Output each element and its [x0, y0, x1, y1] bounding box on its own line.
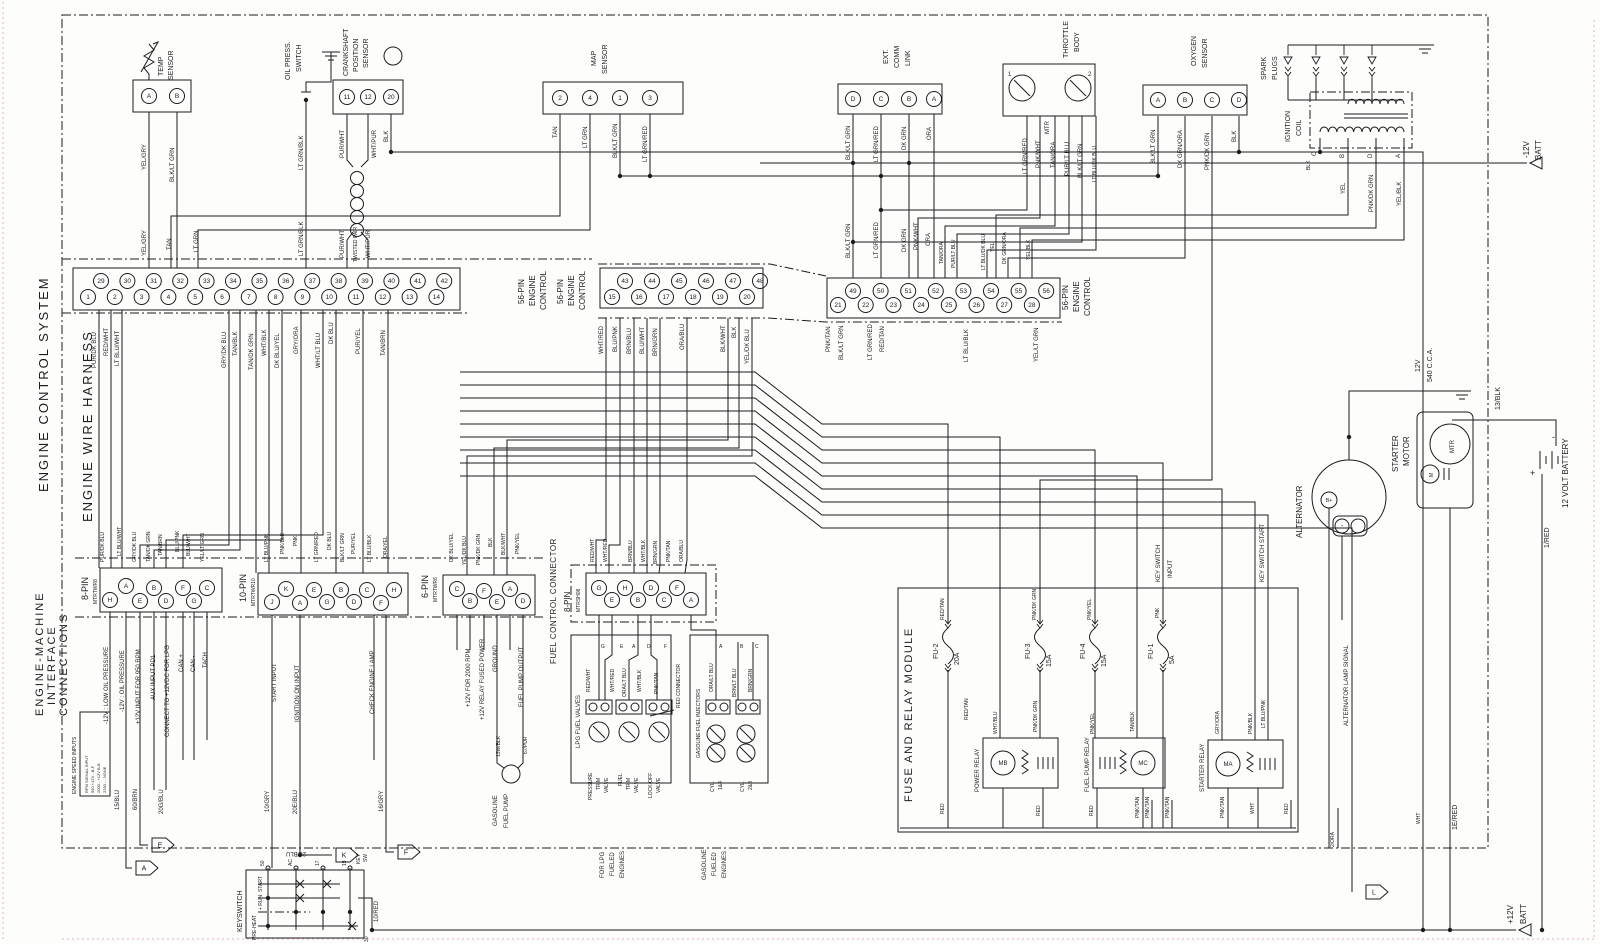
- keyswitch-vt: START: [258, 876, 264, 892]
- temp_sensor-vt: TAN: [167, 238, 173, 250]
- conn_8pin-vt: MTRTWR8: [93, 579, 99, 604]
- svg-text:FUEL PUMP OUTPUT: FUEL PUMP OUTPUT: [519, 646, 525, 707]
- title-engine-machine: ENGINE-MACHINE: [34, 591, 46, 716]
- throttle_body-vt: BLK/LT GRN: [1078, 144, 1084, 178]
- svg-text:10/RED: 10/RED: [374, 900, 380, 922]
- battery-symbol: [1540, 451, 1558, 469]
- svg-text:MTRTWR8: MTRTWR8: [93, 579, 99, 604]
- fuse_relay-vt: PNK/YEL: [1087, 599, 1093, 620]
- spark_ignition-vt: SPARK: [1261, 56, 1268, 80]
- gas_injectors-circ: [738, 703, 746, 711]
- svg-text:9: 9: [301, 294, 305, 301]
- oxygen_sensor-wire: [1040, 116, 1212, 624]
- svg-text:12V: 12V: [1415, 359, 1422, 372]
- svg-text:1: 1: [618, 95, 622, 102]
- title-fuel-control-connector: FUEL CONTROL CONNECTOR: [549, 538, 558, 664]
- power_right-vt: +12V: [1506, 904, 1515, 924]
- svg-text:YEL/DK BLU: YEL/DK BLU: [462, 536, 468, 565]
- ecm_right-pins: 4950515253545556: [846, 284, 1054, 299]
- svg-text:BRN/BLU: BRN/BLU: [627, 328, 633, 354]
- oxygen_sensor-vt: OXYGEN: [1191, 36, 1198, 66]
- svg-text:19: 19: [716, 294, 724, 301]
- ext_comm_link-vt: LINK: [905, 50, 912, 66]
- oil_press_switch-vt: OIL PRESS.: [285, 41, 292, 80]
- svg-text:56: 56: [1043, 288, 1051, 295]
- svg-text:2250 - - NONE: 2250 - - NONE: [102, 766, 107, 793]
- svg-text:TAN: TAN: [167, 238, 173, 250]
- fuel_connector-pin: F: [670, 581, 685, 596]
- svg-text:LT BLU/PNK: LT BLU/PNK: [1261, 699, 1267, 728]
- svg-text:H: H: [108, 597, 113, 604]
- svg-text:PUR/DK BLU: PUR/DK BLU: [100, 532, 106, 562]
- ext_comm_link-vt: EXT.: [883, 49, 890, 64]
- svg-text:950 +12V - B-F: 950 +12V - B-F: [90, 765, 95, 793]
- ext_comm_link-pin: A: [927, 92, 942, 107]
- gas_injectors-wire: [710, 728, 722, 740]
- ecm_left-vt: ENGINE: [528, 275, 537, 306]
- svg-text:L: L: [1372, 890, 1376, 897]
- crank_sensor-vt: TWISTED PAIR: [353, 226, 359, 262]
- svg-text:PNK/DK GRN: PNK/DK GRN: [1205, 133, 1211, 170]
- ecm_mid-vt: BLK: [732, 327, 738, 338]
- svg-text:C: C: [1210, 97, 1215, 104]
- svg-text:PNK/TAN: PNK/TAN: [1145, 796, 1151, 818]
- throttle_body-wire: [957, 116, 1069, 278]
- throttle_body-vt: LT BLU/DK BLU: [1092, 146, 1098, 182]
- temp_sensor-pin: B: [170, 89, 185, 104]
- svg-text:RPM SIGNAL INPUT: RPM SIGNAL INPUT: [84, 755, 89, 793]
- svg-text:MA: MA: [1224, 762, 1233, 768]
- fuse_relay-vt: 15A: [1101, 654, 1108, 667]
- lpg_valves-wire: [593, 726, 605, 738]
- fuse_relay-vt: 20A: [954, 652, 961, 665]
- svg-text:BRN/GRN: BRN/GRN: [653, 541, 659, 564]
- power_right-ht: -: [1552, 432, 1555, 442]
- svg-text:FOR LPG: FOR LPG: [600, 851, 606, 878]
- fuel_connector-pin: E: [605, 593, 620, 608]
- conn_8pin-vt: BLU/WHT: [186, 534, 192, 557]
- svg-text:WHT/RED: WHT/RED: [599, 325, 605, 354]
- keyswitch-dot: [321, 910, 325, 914]
- left_drops-wire: [609, 318, 620, 573]
- svg-text:A: A: [147, 93, 152, 100]
- map_sensor-pin: 1: [613, 91, 628, 106]
- svg-text:M: M: [1429, 473, 1435, 477]
- svg-text:E: E: [312, 587, 317, 594]
- conn_10pin-pin: C: [360, 583, 375, 598]
- svg-text:MOTOR: MOTOR: [1402, 436, 1411, 466]
- keyswitch-vt: 30: [364, 936, 370, 942]
- svg-text:DK GRN/ORA: DK GRN/ORA: [1002, 232, 1008, 264]
- conn_10pin-vt: DK BLU: [327, 532, 333, 550]
- throttle_body-vt: PNK/WHT: [1036, 140, 1042, 168]
- svg-text:1: 1: [86, 294, 90, 301]
- svg-text:E: E: [138, 598, 143, 605]
- lpg_valves-circ: [649, 703, 657, 711]
- svg-text:55: 55: [1015, 288, 1023, 295]
- spark_ignition-wire: [1020, 138, 1376, 278]
- spark_ignition-vt: COIL: [1296, 120, 1303, 136]
- temp_sensor-vt: YEL/GRY: [142, 144, 148, 170]
- crank_sensor-vt: POSITION: [353, 39, 360, 72]
- svg-text:PNK/BLK: PNK/BLK: [1248, 712, 1254, 734]
- svg-text:FUEL PUMP: FUEL PUMP: [504, 794, 510, 828]
- svg-text:RED: RED: [1284, 803, 1290, 814]
- svg-text:PNK/WHT: PNK/WHT: [914, 222, 920, 250]
- svg-text:FUELED: FUELED: [610, 852, 616, 876]
- spark_ignition-vt: BLK: [1306, 160, 1312, 170]
- svg-text:1&4: 1&4: [718, 781, 724, 790]
- svg-text:B: B: [1340, 154, 1346, 158]
- fuse_relay-vt: GRY/ORA: [1215, 710, 1221, 734]
- svg-text:TAN/BRN: TAN/BRN: [158, 534, 164, 556]
- svg-text:K: K: [284, 586, 289, 593]
- svg-text:17: 17: [315, 860, 321, 866]
- conn_10pin-pin: A: [293, 596, 308, 611]
- svg-text:37: 37: [309, 278, 317, 285]
- svg-text:STARTER: STARTER: [1391, 435, 1400, 472]
- svg-text:1E/RED: 1E/RED: [1452, 805, 1459, 830]
- svg-text:MAP: MAP: [591, 51, 598, 67]
- power_right-circ: B+: [1321, 492, 1337, 508]
- lpg_valves-vt: ORA/LT BLU: [622, 668, 628, 697]
- keyswitch-wire: [386, 615, 394, 852]
- svg-text:PUR/YEL: PUR/YEL: [351, 532, 357, 554]
- speed_table_gfx-vt: 2250 - - NONE: [102, 766, 107, 793]
- svg-text:SENSOR: SENSOR: [602, 44, 609, 74]
- conn_6pin-pin: C: [450, 582, 465, 597]
- svg-text:START: START: [258, 876, 264, 892]
- svg-text:PUR/YEL: PUR/YEL: [356, 328, 362, 354]
- svg-text:A: A: [632, 644, 636, 650]
- svg-text:46: 46: [702, 278, 710, 285]
- map_sensor-wire: [198, 114, 590, 268]
- svg-text:MTR: MTR: [1045, 120, 1051, 134]
- svg-text:START INPUT: START INPUT: [272, 663, 278, 702]
- svg-text:BLK/WHT: BLK/WHT: [721, 325, 727, 352]
- svg-text:8: 8: [274, 294, 278, 301]
- svg-text:11: 11: [353, 294, 360, 301]
- temp_sensor-vt: BLK/LT GRN: [170, 148, 176, 182]
- gas_injectors-vt: GASOLINE FUEL INJECTORS: [696, 688, 702, 758]
- svg-text:FU-3: FU-3: [1025, 643, 1032, 659]
- gas_injectors-ht: A: [719, 644, 723, 650]
- conn_8pin-vt: 60/BRN: [133, 789, 139, 810]
- svg-text:26: 26: [973, 302, 981, 309]
- oxygen_sensor-pin: B: [1178, 93, 1193, 108]
- temp_sensor-vt: SENSOR: [168, 50, 175, 80]
- keyswitch-vt: AC: [288, 859, 294, 866]
- svg-text:WHT/LT BLU: WHT/LT BLU: [316, 333, 322, 368]
- map_sensor-vt: LT GRN: [583, 127, 589, 148]
- svg-text:A: A: [1156, 97, 1161, 104]
- ecm_mid-vt: BLU/WHT: [640, 327, 646, 354]
- oil_press_switch-vt: LT GRN/BLK: [299, 222, 305, 256]
- svg-text:A: A: [508, 586, 513, 593]
- svg-text:F: F: [664, 644, 667, 650]
- rotation-arrow: [384, 47, 402, 65]
- conn_10pin-vt: LT GRN/RED: [314, 532, 320, 562]
- svg-text:12: 12: [379, 294, 387, 301]
- lpg_valves-ht: G: [601, 644, 605, 650]
- oil_press_switch-wire: [306, 52, 331, 92]
- alternator-terminals: [1333, 516, 1367, 536]
- ecm_left-vt: LT BLU/WHT: [115, 331, 121, 366]
- svg-text:56-PIN: 56-PIN: [1061, 285, 1070, 310]
- ecm_mid-vt: YEL/DK BLU: [745, 329, 751, 364]
- ecm_right-vt: PNK/TAN: [826, 326, 832, 352]
- ecm_mid-vt: BLU/PNK: [613, 326, 619, 352]
- svg-text:B: B: [175, 93, 179, 100]
- svg-text:PNK: PNK: [293, 535, 299, 546]
- svg-text:D: D: [647, 644, 651, 650]
- conn_8pin-vt: TACH: [203, 652, 209, 668]
- throttle_body-vt: LT GRN/RED: [1023, 138, 1029, 174]
- svg-text:LT GRN/RED: LT GRN/RED: [643, 126, 649, 162]
- lpg_valves-vt: WHT/BLK: [637, 669, 643, 692]
- mid_fan-vt: KEY SWITCH START: [1260, 524, 1266, 582]
- oil_press_switch-vt: SWITCH: [296, 44, 303, 72]
- ecm_left-vt: DK BLU/YEL: [275, 333, 281, 368]
- crank_sensor-pin: 12: [361, 90, 376, 105]
- fuse_relay-cap: [1260, 758, 1265, 770]
- top_buses-vt: -12V: [1522, 140, 1531, 158]
- map_sensor-vt: BLK/LT GRN: [613, 124, 619, 158]
- lpg_valves-vt: FUELED: [610, 852, 616, 876]
- fuse_relay-cap: [1270, 758, 1275, 770]
- svg-text:LINK: LINK: [905, 50, 912, 66]
- svg-text:F: F: [404, 850, 408, 857]
- spark_ignition-vt: IGNITION: [1285, 111, 1292, 142]
- svg-text:B: B: [740, 644, 744, 650]
- fuse_relay-vt: FU-2: [933, 643, 940, 659]
- svg-text:IGNITION: IGNITION: [1285, 111, 1292, 142]
- throttle-body: [1003, 64, 1095, 116]
- fuse_relay-vt: STARTER RELAY: [1200, 744, 1206, 792]
- svg-text:DK BLU/YEL: DK BLU/YEL: [449, 533, 455, 562]
- svg-text:-12V : OIL PRESSURE: -12V : OIL PRESSURE: [120, 650, 126, 712]
- svg-text:50: 50: [260, 860, 266, 866]
- fuse_relay-vt: PNK/TAN: [1220, 796, 1226, 818]
- ecm_left-vt: WHT/LT BLU: [316, 333, 322, 368]
- ecm_right-vt: 56-PIN: [1061, 285, 1070, 310]
- svg-text:LT GRN/RED: LT GRN/RED: [874, 126, 880, 162]
- svg-text:DK BLU/YEL: DK BLU/YEL: [275, 333, 281, 368]
- lpg_valves-ht: A: [632, 644, 636, 650]
- svg-text:LT BLU/BLK: LT BLU/BLK: [964, 329, 970, 362]
- alternator: [1312, 460, 1386, 534]
- svg-text:29: 29: [97, 278, 105, 285]
- conn_8pin-pin: A: [119, 579, 134, 594]
- ecm_left-pins: 2930313233343536373839404142: [94, 274, 452, 289]
- svg-text:ORA: ORA: [926, 233, 932, 246]
- svg-text:PUR/LT BLU: PUR/LT BLU: [1065, 142, 1071, 176]
- ecm_left-vt: GRY/ORA: [294, 326, 300, 354]
- fuse_relay-cap: [1100, 757, 1105, 769]
- lpg_valves-vt: FOR LPG: [600, 851, 606, 878]
- svg-text:DK BLU: DK BLU: [329, 322, 335, 344]
- conn_8pin-pin: G: [187, 594, 202, 609]
- top_buses-dot: [907, 161, 911, 165]
- lpg_valves-vt: LOCK-OFF: [648, 773, 654, 798]
- temp_sensor-wire: [141, 42, 158, 72]
- fuse_relay-circ: MC: [1131, 751, 1155, 775]
- title-engine-control-system: ENGINE CONTROL SYSTEM: [36, 276, 51, 492]
- svg-text:20: 20: [743, 294, 751, 301]
- svg-text:BLK/LT GRN: BLK/LT GRN: [613, 124, 619, 158]
- svg-text:PNK/DK GRN: PNK/DK GRN: [476, 533, 482, 565]
- fuse_relay-cap: [1038, 757, 1043, 769]
- left_drops-wire: [596, 318, 606, 573]
- oxygen_sensor-vt: BLK: [1232, 131, 1238, 142]
- lpg_valves-circ: [589, 703, 597, 711]
- svg-text:CYL.: CYL.: [740, 781, 746, 792]
- conn_10pin-vt: 10-PIN: [238, 574, 248, 602]
- svg-text:A: A: [1396, 154, 1402, 158]
- conn_6pin-vt: BLK/WHT: [501, 533, 507, 555]
- twisted-pair-symbol: [351, 172, 364, 237]
- svg-text:PNK/TAN: PNK/TAN: [826, 326, 832, 352]
- svg-text:TAN/BLK: TAN/BLK: [233, 331, 239, 356]
- title-interface: INTERFACE: [46, 625, 58, 705]
- conn_8pin-vt: TAN/DK GRN: [146, 531, 152, 562]
- crank_sensor-vt: SENSOR: [363, 38, 370, 68]
- fuse_relay-vt: PNK/DK GRN: [1033, 700, 1039, 732]
- oxygen_sensor-pin: C: [1205, 93, 1220, 108]
- svg-text:PNK/DK GRN: PNK/DK GRN: [1033, 700, 1039, 732]
- svg-text:25: 25: [945, 302, 953, 309]
- svg-text:ALTERNATOR: ALTERNATOR: [1295, 485, 1304, 538]
- power_right-vt: 1/RED: [1544, 527, 1551, 548]
- ext_comm_link-pin: D: [846, 92, 861, 107]
- gas_injectors-box: [706, 700, 730, 714]
- power_right-ht: +: [1530, 468, 1535, 478]
- svg-text:BRN/GRN: BRN/GRN: [653, 328, 659, 356]
- fuse_relay-vt: PNK/YEL: [1090, 713, 1096, 734]
- svg-text:GASOLINE: GASOLINE: [493, 795, 499, 826]
- conn_10pin-vt: 16/GRY: [379, 791, 385, 812]
- lpg_valves-ht: F: [664, 644, 667, 650]
- svg-text:YEL/BLK: YEL/BLK: [1397, 182, 1403, 206]
- svg-text:C: C: [879, 96, 884, 103]
- svg-text:LT BLU/BLK: LT BLU/BLK: [367, 534, 373, 562]
- svg-text:C: C: [205, 585, 210, 592]
- svg-text:LPG FUEL VALVES: LPG FUEL VALVES: [576, 695, 582, 748]
- svg-text:40: 40: [388, 278, 396, 285]
- svg-text:23: 23: [890, 302, 898, 309]
- map_sensor-vt: SENSOR: [602, 44, 609, 74]
- left_drops-wire: [659, 318, 660, 573]
- ext_comm_link-vt: PNK/WHT: [914, 222, 920, 250]
- conn_10pin-pin: J: [265, 595, 280, 610]
- svg-text:PNK/YEL: PNK/YEL: [515, 533, 521, 554]
- svg-text:B+: B+: [1326, 498, 1332, 504]
- ecm_left-vt: GRY/DK BLU: [222, 332, 228, 368]
- svg-text:20: 20: [387, 94, 395, 101]
- lpg_valves-ht: D: [647, 644, 651, 650]
- ecm_right-vt: DK GRN/ORA: [1002, 232, 1008, 264]
- svg-text:B: B: [1183, 97, 1187, 104]
- left_drops-wire: [507, 318, 728, 575]
- svg-text:33: 33: [203, 278, 211, 285]
- coil-primary: [1320, 127, 1404, 132]
- lpg_valves-vt: VALVE: [604, 777, 610, 793]
- svg-text:DK GRN: DK GRN: [902, 229, 908, 252]
- crank_sensor-vt: PUR/WHT: [340, 230, 346, 258]
- svg-text:BODY: BODY: [1074, 32, 1081, 52]
- svg-text:LT GRN/BLK: LT GRN/BLK: [299, 136, 305, 170]
- svg-text:BLK: BLK: [1306, 160, 1312, 170]
- svg-text:PNK/TAN: PNK/TAN: [1220, 796, 1226, 818]
- conn_6pin-pin: D: [516, 594, 531, 609]
- spark_ignition-plug: [1284, 45, 1292, 79]
- temp_sensor-vt: LT GRN: [194, 231, 200, 252]
- ext_comm_link-vt: BLK/LT GRN: [846, 224, 852, 258]
- svg-text:42: 42: [441, 278, 449, 285]
- svg-text:52: 52: [932, 288, 940, 295]
- svg-text:WHT: WHT: [1250, 803, 1256, 814]
- svg-text:24: 24: [917, 302, 925, 309]
- lpg_valves-vt: WHT/RED: [610, 668, 616, 692]
- oxygen_sensor-pin: D: [1232, 93, 1247, 108]
- speed_table_gfx-vt: 2000 - +12V B-B: [96, 763, 101, 793]
- ecm_mid-pins: 151617181920: [605, 290, 755, 305]
- svg-text:CONTROL: CONTROL: [1083, 276, 1092, 316]
- svg-text:LT BLU/WHT: LT BLU/WHT: [115, 331, 121, 366]
- svg-text:2: 2: [558, 95, 562, 102]
- conn_8pin-vt: 15/BLU: [115, 790, 121, 810]
- svg-text:31: 31: [150, 278, 158, 285]
- feed-power-relay: [460, 385, 1000, 738]
- keyswitch-flag: K: [336, 848, 358, 862]
- speed_table_gfx-vt: RPM SIGNAL INPUT: [84, 755, 89, 793]
- svg-text:30: 30: [124, 278, 132, 285]
- lpg_valves-vt: FUEL: [618, 773, 624, 786]
- lpg_valves-vt: RED/WHT: [586, 669, 592, 692]
- svg-text:POSITION: POSITION: [353, 39, 360, 72]
- fuse-fu4: [1090, 620, 1101, 672]
- svg-text:C: C: [365, 587, 370, 594]
- svg-text:BLK/LT GRN: BLK/LT GRN: [846, 126, 852, 160]
- svg-text:TAN/BRN: TAN/BRN: [381, 330, 387, 356]
- spark_ignition-vt: PLUGS: [1272, 56, 1279, 80]
- svg-text:A: A: [932, 96, 937, 103]
- conn_8pin-pin: H: [103, 593, 118, 608]
- spark_ignition-wire: [996, 138, 1348, 278]
- starter-relay: [1208, 740, 1283, 788]
- power_right-vt: 13/BLK: [1495, 387, 1502, 410]
- svg-text:YEL: YEL: [1341, 182, 1347, 194]
- throttle_body-wire: [918, 116, 1040, 278]
- power_right-vt: ALTERNATOR LAMP SIGNAL: [1344, 644, 1350, 726]
- svg-text:22: 22: [862, 302, 870, 309]
- power_right-vt: STARTER: [1391, 435, 1400, 472]
- svg-text:TRIM: TRIM: [626, 778, 632, 790]
- svg-text:+: +: [1530, 468, 1535, 478]
- svg-text:PUR/WHT: PUR/WHT: [340, 130, 346, 158]
- fuel_connector-vt: 8-PIN: [563, 591, 572, 612]
- svg-text:CYL.: CYL.: [710, 781, 716, 792]
- svg-text:STARTER RELAY: STARTER RELAY: [1200, 744, 1206, 792]
- connector-6pin: [443, 575, 535, 615]
- gas_injectors-vt: BRN/LT BLU: [732, 668, 738, 697]
- svg-text:BLK/LT GRN: BLK/LT GRN: [1151, 130, 1157, 164]
- svg-text:BLK: BLK: [1232, 131, 1238, 142]
- conn_10pin-pin: D: [347, 595, 362, 610]
- gas_injectors-vt: ORA/LT BLU: [709, 663, 715, 692]
- ecm_mid-vt: CONTROL: [578, 270, 587, 310]
- fuse_relay-vt: RED: [940, 803, 946, 814]
